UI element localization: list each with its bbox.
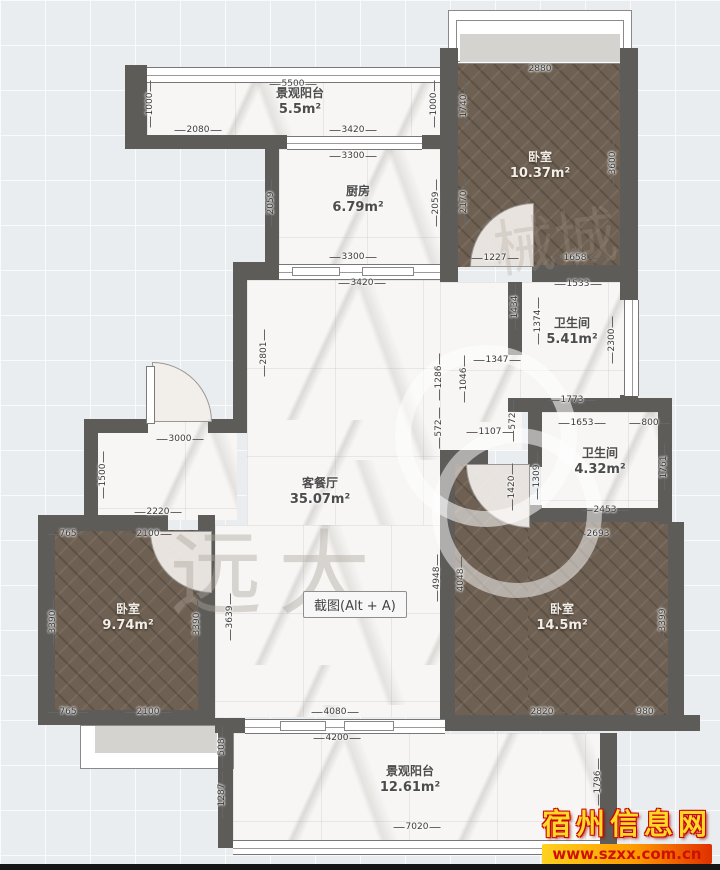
dimension-label: 2693	[574, 529, 623, 539]
dimension-label: 4200	[313, 733, 362, 743]
dimension-label: 2820	[518, 707, 567, 717]
dimension-label: 2059	[266, 179, 276, 228]
room-area: 5.41m²	[546, 331, 597, 348]
dimension-label: 1227	[471, 253, 520, 263]
dimension-label: 1107	[466, 427, 515, 437]
dimension-label: 1533	[554, 279, 603, 289]
room-area: 10.37m²	[510, 165, 570, 182]
dimension-label: 1000	[145, 80, 155, 129]
wall	[620, 48, 638, 300]
room-area: 12.61m²	[380, 779, 440, 796]
dimension-label: 1796	[593, 758, 603, 807]
dimension-label: 1046	[459, 355, 469, 404]
dimension-label: 4080	[311, 707, 360, 717]
dimension-label: 1434	[510, 283, 520, 332]
wall	[233, 280, 247, 433]
room-name: 景观阳台	[380, 764, 440, 780]
dimension-label: 3390	[192, 600, 202, 649]
floorplan-canvas: 远大 械城 5500100020803420100017403300205920…	[0, 0, 720, 870]
dimension-label: 2220	[134, 507, 183, 517]
dimension-label: 1653	[558, 418, 607, 428]
dimension-label: 3420	[329, 125, 378, 135]
room-area: 9.74m²	[102, 617, 153, 634]
room-label: 卫生间4.32m²	[574, 446, 625, 478]
window	[624, 300, 639, 396]
dimension-label: 1773	[548, 395, 597, 405]
room-area: 14.5m²	[536, 617, 587, 634]
room-label: 客餐厅35.07m²	[290, 476, 350, 508]
dimension-label: 3000	[156, 434, 205, 444]
dimension-label: 7020	[393, 822, 442, 832]
dimension-label: 1347	[473, 355, 522, 365]
dimension-label: 1500	[98, 451, 108, 500]
room-label: 卧室14.5m²	[536, 602, 587, 634]
room-label: 景观阳台5.5m²	[276, 86, 324, 118]
dimension-label: 1287	[217, 771, 227, 820]
room-area: 4.32m²	[574, 461, 625, 478]
wall	[422, 135, 440, 149]
dimension-label: 1374	[533, 297, 543, 346]
room-name: 卧室	[510, 150, 570, 166]
bay-window	[460, 34, 620, 62]
room-label: 卧室9.74m²	[102, 602, 153, 634]
dimension-label: 765	[46, 529, 89, 539]
wall	[440, 715, 700, 731]
dimension-label: 1420	[507, 463, 517, 512]
dimension-label: 572	[434, 406, 444, 449]
dimension-label: 980	[623, 707, 666, 717]
dimension-label: 4048	[456, 556, 466, 605]
dimension-label: 3300	[329, 151, 378, 161]
dimension-label: 2801	[259, 329, 269, 378]
room-name: 卧室	[102, 602, 153, 618]
dimension-label: 2080	[174, 125, 223, 135]
bay-window	[95, 726, 217, 753]
site-watermark: 宿州信息网 www.szxx.com.cn	[542, 801, 712, 864]
dimension-label: 765	[46, 707, 89, 717]
room-name: 卫生间	[546, 316, 597, 332]
room-label: 景观阳台12.61m²	[380, 764, 440, 796]
dimension-label: 2100	[124, 529, 173, 539]
counter-symbol	[292, 267, 340, 276]
room-name: 卫生间	[574, 446, 625, 462]
room-name: 客餐厅	[290, 476, 350, 492]
brand-watermark: 械城	[486, 184, 621, 290]
counter-symbol	[280, 721, 326, 731]
dimension-label: 800	[628, 418, 671, 428]
wall	[233, 262, 279, 280]
window	[287, 136, 422, 150]
dimension-label: 3399	[658, 596, 668, 645]
room-name: 景观阳台	[276, 86, 324, 102]
dimension-label: 3639	[225, 593, 235, 642]
dimension-label: 2880	[516, 64, 565, 74]
room-area: 35.07m²	[290, 491, 350, 508]
site-watermark-url: www.szxx.com.cn	[542, 844, 712, 864]
room-area: 5.5m²	[276, 101, 324, 118]
dimension-label: 2300	[607, 316, 617, 365]
room-label: 厨房6.79m²	[332, 184, 383, 216]
dimension-label: 1286	[434, 353, 444, 402]
counter-symbol	[362, 267, 414, 276]
room-area: 6.79m²	[332, 199, 383, 216]
wall	[208, 419, 235, 433]
dimension-label: 3420	[338, 278, 387, 288]
dimension-label: 4948	[432, 554, 442, 603]
room-label: 卫生间5.41m²	[546, 316, 597, 348]
site-watermark-name: 宿州信息网	[542, 801, 712, 843]
wall	[440, 48, 458, 282]
room-label: 卧室10.37m²	[510, 150, 570, 182]
dimension-label: 2059	[431, 179, 441, 228]
bottom-edge-strip	[0, 864, 720, 870]
dimension-label: 2170	[459, 178, 469, 227]
dimension-label: 508	[217, 725, 227, 768]
door-leaf	[146, 366, 155, 424]
dimension-label: 3300	[329, 252, 378, 262]
room-name: 厨房	[332, 184, 383, 200]
dimension-label: 1761	[659, 443, 669, 492]
dimension-label: 1000	[429, 80, 439, 129]
dimension-label: 2100	[124, 707, 173, 717]
wall	[84, 419, 98, 520]
dimension-label: 3600	[608, 139, 618, 188]
room-name: 卧室	[536, 602, 587, 618]
screenshot-button[interactable]: 截图(Alt + A)	[303, 591, 407, 618]
dimension-label: 1658	[551, 253, 600, 263]
wall	[125, 135, 287, 149]
dimension-label: 2453	[581, 505, 630, 515]
dimension-label: 1309	[532, 452, 542, 501]
dimension-label: 1740	[459, 82, 469, 131]
dimension-label: 3390	[48, 598, 58, 647]
wall	[668, 522, 684, 722]
counter-symbol	[344, 721, 394, 731]
